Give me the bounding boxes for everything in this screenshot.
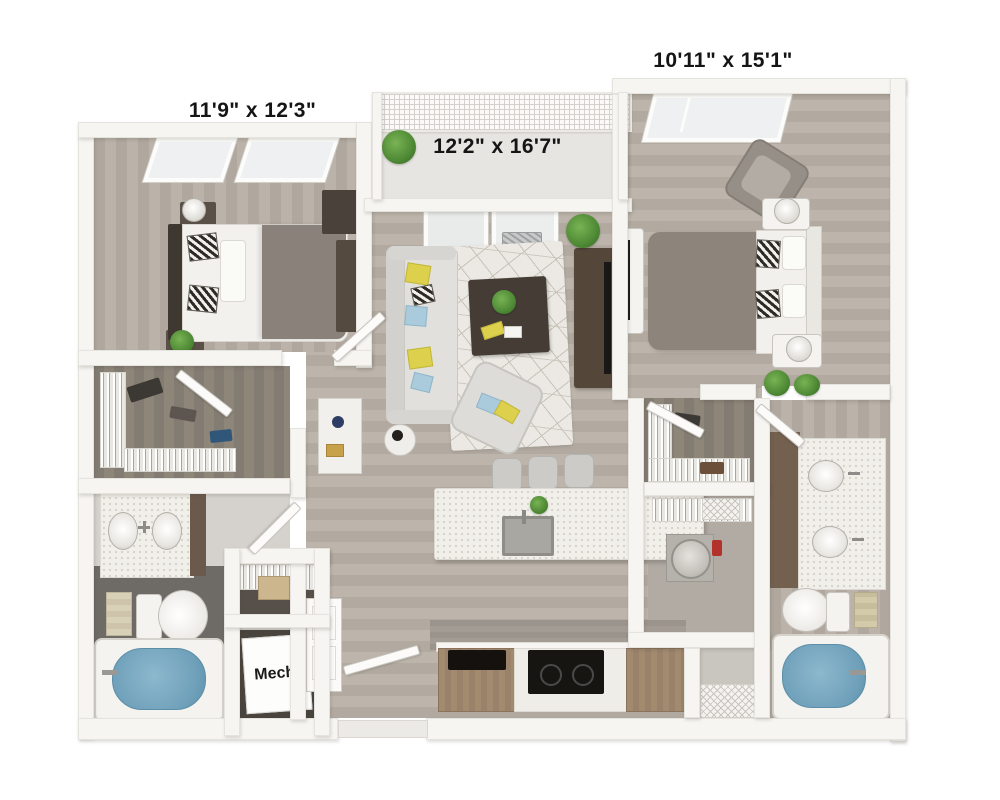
wall-right-column-west	[628, 398, 644, 638]
bed-pillow	[755, 289, 781, 319]
table-lamp	[786, 336, 812, 362]
wall-balcony-living	[364, 198, 632, 212]
vanity-right-counter	[798, 438, 886, 590]
bar-stool	[528, 456, 558, 490]
pantry-wire-rack	[700, 684, 756, 718]
wall-mech-divider	[224, 614, 330, 628]
tub-faucet	[850, 670, 866, 675]
dresser	[322, 190, 360, 234]
console-table-hall	[318, 398, 362, 474]
sofa-armrest	[388, 410, 456, 424]
wall-balcony-post-left	[372, 92, 382, 200]
coffee-table	[468, 276, 550, 356]
wall-pantry-west	[684, 648, 700, 718]
bed-pillow-white	[220, 240, 246, 302]
utility-basket	[702, 498, 740, 520]
bed-left-duvet	[262, 225, 346, 339]
hanging-clothes	[700, 462, 724, 474]
bed-pillow	[755, 239, 781, 269]
vanity-faucet	[852, 538, 864, 541]
wall-exterior-right	[890, 78, 906, 742]
floor-plan-canvas: Mech.	[0, 0, 1000, 800]
vanity-faucet	[143, 521, 146, 533]
sofa-pillow	[407, 346, 434, 369]
bed-pillow	[187, 232, 220, 261]
wall-closet-utility-divider	[644, 482, 770, 496]
wall-closet-left-east-a	[290, 428, 306, 498]
toilet-bowl	[782, 588, 830, 632]
bed-right-duvet	[648, 232, 760, 350]
kitchen-sink	[448, 650, 506, 670]
bar-stool	[564, 454, 594, 488]
sofa-pillow	[404, 305, 428, 327]
bedroom-left-window-1	[143, 138, 237, 182]
stove-burner	[540, 664, 562, 686]
vanity-sink	[108, 512, 138, 550]
vanity-left-cabinet	[190, 482, 206, 576]
vanity-sink	[812, 526, 848, 558]
wall-exterior-top-bedroom-right	[612, 78, 906, 94]
bedroom-right-plant	[764, 370, 790, 396]
closet-left-shelf-bottom	[124, 448, 236, 472]
table-tray	[504, 326, 522, 338]
wall-bedroom-left-south	[78, 350, 282, 366]
wall-balcony-post-right	[618, 92, 628, 200]
bed-left-headboard	[168, 224, 182, 340]
linen-basket	[258, 576, 290, 600]
living-corner-plant	[566, 214, 600, 248]
wall-utility-south	[628, 632, 770, 648]
towel-shelf	[854, 592, 878, 628]
bedroom-right-window	[642, 94, 792, 142]
bedroom-right-dimension-label: 10'11" x 15'1"	[608, 50, 838, 71]
wardrobe	[336, 240, 358, 332]
closet-right-shelf-bottom	[648, 458, 750, 482]
wall-exterior-bottom-left	[78, 718, 338, 740]
shutoff-valve-red	[712, 540, 722, 556]
bedroom-left-dimension-label: 11'9" x 12'3"	[140, 100, 365, 121]
living-room-dimension-label: 12'2" x 16'7"	[390, 136, 605, 157]
wall-closet-left-east-b	[290, 560, 306, 720]
wall-exterior-top-bedroom-left	[78, 122, 372, 138]
vanity-right-cabinet	[770, 432, 800, 588]
wall-exterior-left	[78, 122, 94, 738]
wall-mech-left	[224, 548, 240, 736]
closet-left-shelf-side	[100, 372, 126, 468]
island-plant	[530, 496, 548, 514]
coffee-table-plant	[492, 290, 516, 314]
toilet-bowl	[158, 590, 208, 642]
wall-closet-bath-divider	[78, 478, 290, 494]
island-faucet	[522, 510, 526, 524]
stove-burner	[572, 664, 594, 686]
table-lamp	[774, 198, 800, 224]
wall-bathroom-right-west	[754, 398, 770, 718]
bedroom-left-window-2	[235, 138, 339, 182]
vanity-sink	[152, 512, 182, 550]
wall-mech-right	[314, 548, 330, 736]
side-table-vase	[392, 430, 403, 441]
vanity-faucet	[848, 472, 860, 475]
bed-pillow-white	[782, 284, 806, 318]
bathtub-water	[112, 648, 206, 710]
kitchen-cabinet-right	[626, 648, 686, 712]
bathroom-right-plant	[794, 374, 820, 396]
soundbar	[604, 262, 611, 374]
bed-pillow-white	[782, 236, 806, 270]
vanity-sink	[808, 460, 844, 492]
towel-rack	[106, 592, 132, 636]
wall-bedroom-right-south-a	[700, 384, 756, 400]
bathtub-water	[782, 644, 866, 708]
table-lamp	[182, 198, 206, 222]
toilet-tank	[826, 592, 850, 632]
sofa-pillow	[405, 262, 432, 286]
sofa-armrest	[388, 246, 456, 260]
island-sink	[502, 516, 554, 556]
console-vase	[332, 416, 344, 428]
tub-faucet	[102, 670, 118, 675]
entry-threshold	[338, 720, 428, 738]
bar-stool	[492, 458, 522, 492]
water-heater	[671, 539, 711, 579]
console-box	[326, 444, 344, 457]
bed-pillow	[187, 285, 220, 314]
balcony-railing	[372, 92, 632, 132]
hanging-clothes	[209, 429, 232, 443]
wall-exterior-bottom-right	[426, 718, 906, 740]
